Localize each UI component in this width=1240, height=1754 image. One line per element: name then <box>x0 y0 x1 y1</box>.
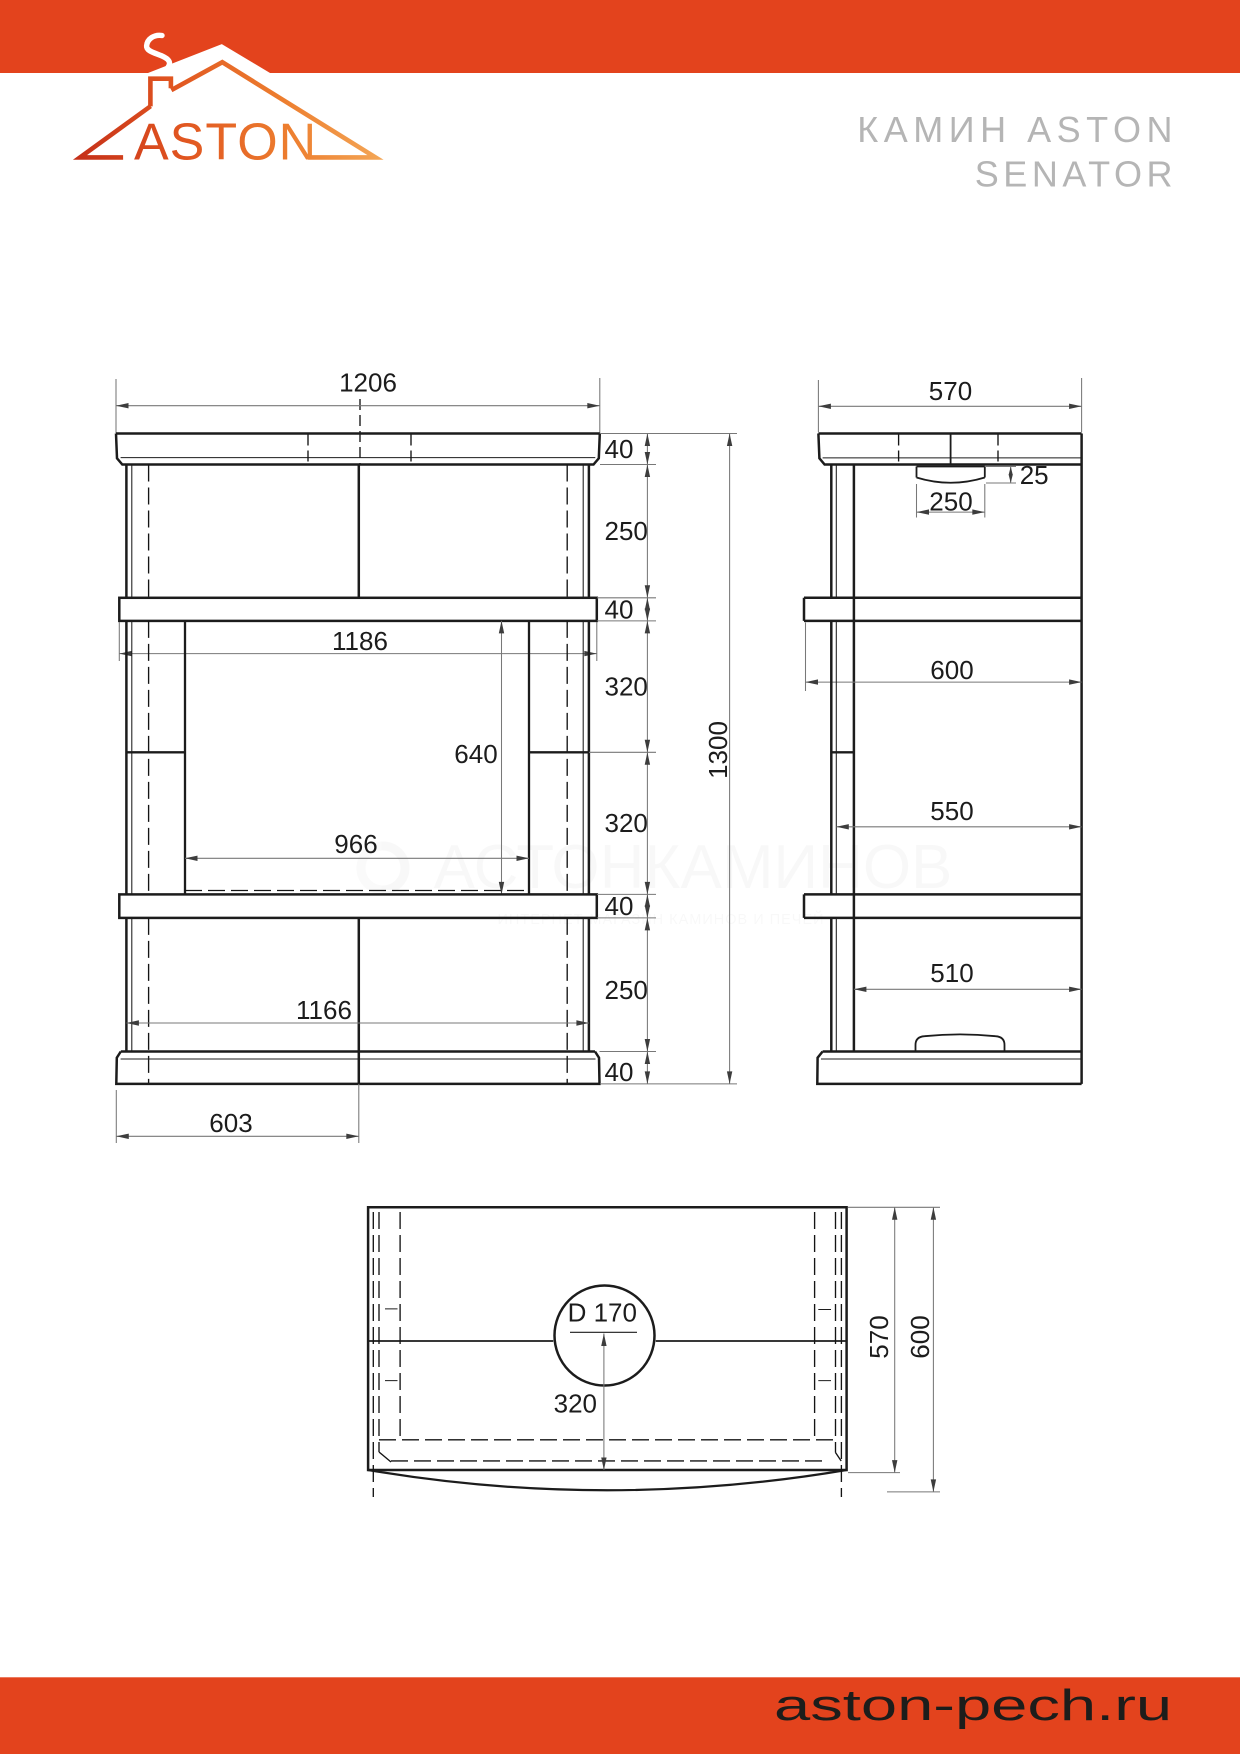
svg-text:320: 320 <box>605 672 648 702</box>
svg-text:570: 570 <box>929 376 972 406</box>
svg-text:40: 40 <box>605 1057 634 1087</box>
svg-text:1206: 1206 <box>339 368 397 398</box>
svg-text:600: 600 <box>905 1315 935 1358</box>
svg-text:320: 320 <box>554 1389 597 1419</box>
svg-text:966: 966 <box>334 829 377 859</box>
svg-text:40: 40 <box>605 595 634 625</box>
svg-text:D 170: D 170 <box>568 1298 637 1328</box>
svg-text:250: 250 <box>929 487 972 517</box>
svg-text:АСТОНКАМИНОВ: АСТОНКАМИНОВ <box>434 833 953 902</box>
svg-text:640: 640 <box>454 739 497 769</box>
svg-text:550: 550 <box>930 796 973 826</box>
svg-text:КАМИН ASTON: КАМИН ASTON <box>857 109 1178 150</box>
svg-text:40: 40 <box>605 434 634 464</box>
svg-text:600: 600 <box>930 655 973 685</box>
svg-text:SENATOR: SENATOR <box>975 154 1177 195</box>
svg-text:570: 570 <box>864 1315 894 1358</box>
svg-text:aston-pech.ru: aston-pech.ru <box>774 1680 1172 1729</box>
svg-text:510: 510 <box>930 958 973 988</box>
svg-text:250: 250 <box>605 516 648 546</box>
svg-text:603: 603 <box>209 1108 252 1138</box>
svg-text:250: 250 <box>605 975 648 1005</box>
svg-text:25: 25 <box>1020 460 1049 490</box>
svg-text:40: 40 <box>605 891 634 921</box>
svg-text:1300: 1300 <box>703 721 733 779</box>
svg-text:320: 320 <box>605 808 648 838</box>
svg-text:1186: 1186 <box>332 626 388 656</box>
svg-text:ASTON: ASTON <box>134 114 317 172</box>
svg-text:1166: 1166 <box>296 995 352 1025</box>
